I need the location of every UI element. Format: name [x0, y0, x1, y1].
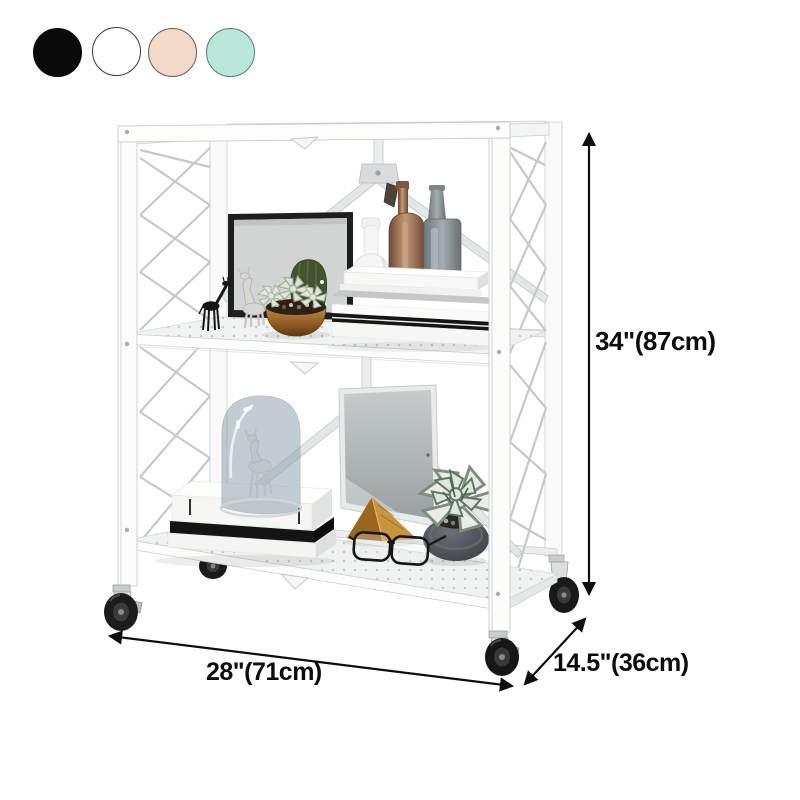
- width-dimension-label: 28"(71cm): [206, 658, 322, 687]
- glass-cloche-with-deer: [221, 396, 301, 517]
- height-dimension-label: 34"(87cm): [595, 326, 716, 357]
- caster-wheel-front-right: [485, 631, 519, 676]
- depth-dimension-label: 14.5"(36cm): [553, 649, 689, 678]
- caster-wheel-front-left: [104, 585, 142, 631]
- right-side-x-lattice: [510, 142, 546, 596]
- product-illustration-folding-shelf: [0, 0, 800, 800]
- standing-mirror: [339, 385, 439, 527]
- product-image: 34"(87cm) 28"(71cm) 14.5"(36cm): [0, 0, 800, 800]
